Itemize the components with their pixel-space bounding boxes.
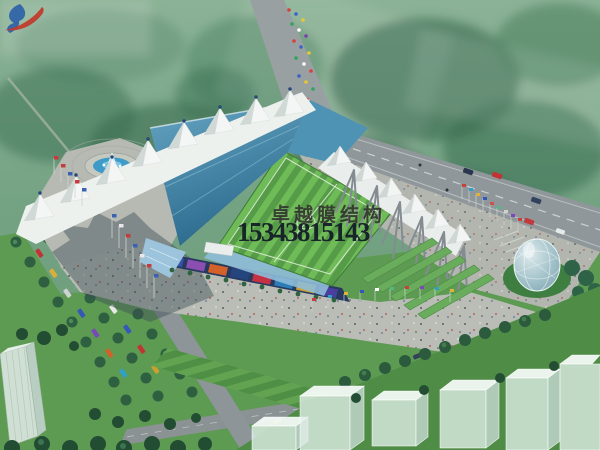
stadium-rendering: 卓越膜结构 15343815143	[0, 0, 600, 450]
scene	[0, 0, 600, 450]
